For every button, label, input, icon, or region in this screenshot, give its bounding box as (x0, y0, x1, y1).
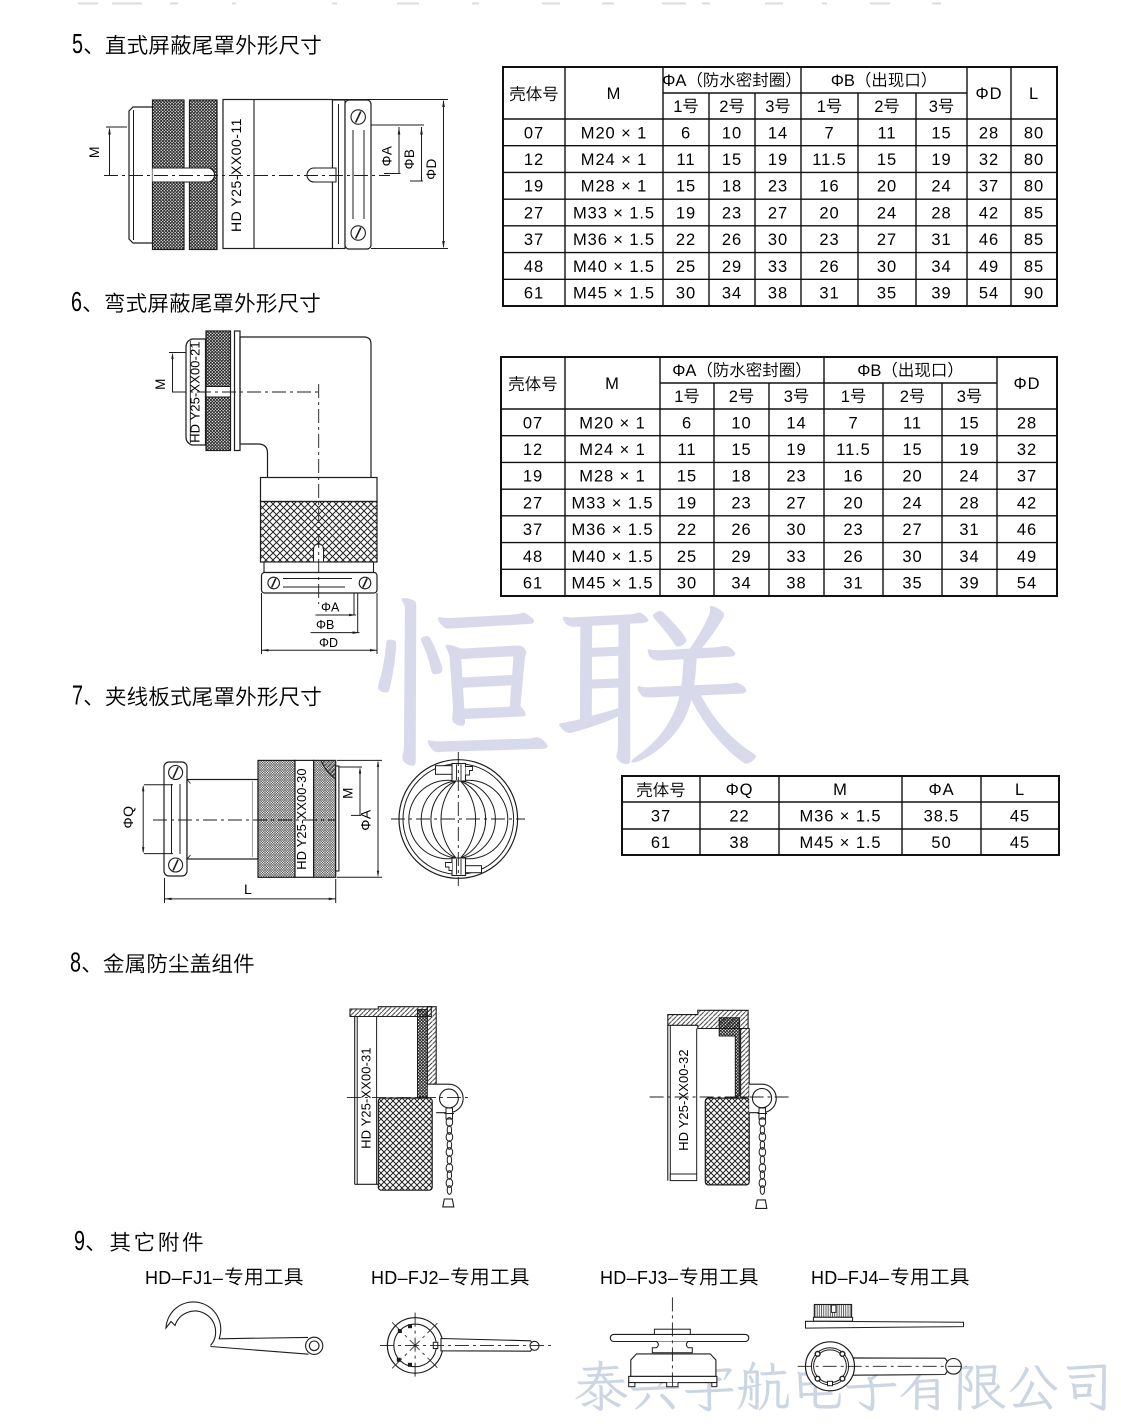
svg-text:30: 30 (786, 521, 806, 539)
svg-text:23: 23 (843, 521, 863, 539)
svg-text:90: 90 (1024, 285, 1044, 303)
svg-text:ΦA: ΦA (380, 146, 395, 167)
svg-text:3: 3 (765, 98, 774, 116)
svg-text:26: 26 (731, 521, 751, 539)
svg-text:16: 16 (843, 468, 863, 486)
svg-text:07: 07 (524, 124, 544, 142)
svg-text:10: 10 (731, 414, 751, 432)
svg-text:80: 80 (1024, 178, 1044, 196)
svg-text:M: M (153, 378, 168, 390)
svg-text:L: L (244, 881, 252, 897)
svg-text:30: 30 (768, 231, 788, 249)
svg-text:30: 30 (677, 575, 697, 593)
svg-text:ΦB: ΦB (402, 149, 417, 170)
svg-text:37: 37 (1017, 468, 1037, 486)
svg-text:16: 16 (819, 178, 839, 196)
svg-text:HD Y25-XX00-11: HD Y25-XX00-11 (228, 118, 244, 232)
svg-text:15: 15 (722, 151, 742, 169)
svg-text:30: 30 (877, 258, 897, 276)
svg-text:38: 38 (729, 834, 749, 852)
svg-text:M: M (341, 787, 356, 799)
svg-text:29: 29 (731, 548, 751, 566)
svg-text:M40 × 1.5: M40 × 1.5 (572, 548, 654, 566)
svg-text:27: 27 (877, 231, 897, 249)
svg-text:3: 3 (957, 388, 966, 406)
svg-text:38: 38 (768, 285, 788, 303)
svg-text:85: 85 (1024, 258, 1044, 276)
svg-text:ΦA: ΦA (321, 601, 340, 615)
svg-text:15: 15 (877, 151, 897, 169)
svg-text:20: 20 (843, 494, 863, 512)
svg-text:31: 31 (931, 231, 951, 249)
svg-text:1: 1 (673, 98, 682, 116)
svg-text:35: 35 (902, 575, 922, 593)
svg-text:54: 54 (1017, 575, 1037, 593)
svg-text:3: 3 (929, 98, 938, 116)
svg-text:11.5: 11.5 (836, 441, 871, 459)
svg-text:80: 80 (1024, 151, 1044, 169)
svg-text:9: 9 (74, 1226, 85, 1257)
svg-text:ΦQ: ΦQ (726, 781, 754, 799)
svg-text:49: 49 (1017, 548, 1037, 566)
svg-text:2: 2 (729, 388, 738, 406)
svg-text:61: 61 (651, 834, 671, 852)
svg-text:M36 × 1.5: M36 × 1.5 (573, 231, 655, 249)
svg-text:11: 11 (677, 151, 696, 169)
svg-text:31: 31 (959, 521, 979, 539)
svg-text:22: 22 (729, 807, 749, 825)
svg-text:26: 26 (819, 258, 839, 276)
svg-text:34: 34 (722, 285, 742, 303)
svg-text:HD Y25-XX00-32: HD Y25-XX00-32 (676, 1049, 691, 1150)
svg-text:31: 31 (843, 575, 863, 593)
svg-text:07: 07 (523, 414, 543, 432)
svg-text:14: 14 (786, 414, 806, 432)
svg-text:12: 12 (524, 151, 544, 169)
svg-text:23: 23 (722, 204, 742, 222)
svg-text:25: 25 (676, 258, 696, 276)
svg-text:HD–FJ2–: HD–FJ2– (371, 1268, 449, 1288)
svg-text:7: 7 (824, 124, 834, 142)
svg-text:27: 27 (768, 204, 788, 222)
svg-text:23: 23 (731, 494, 751, 512)
svg-text:18: 18 (731, 468, 751, 486)
svg-text:42: 42 (1017, 494, 1037, 512)
svg-text:11: 11 (903, 414, 922, 432)
svg-text:L: L (1029, 85, 1039, 103)
svg-text:M36 × 1.5: M36 × 1.5 (800, 807, 882, 825)
svg-text:ΦA: ΦA (929, 781, 955, 799)
svg-text:ΦA: ΦA (672, 362, 696, 380)
svg-text:1: 1 (841, 388, 850, 406)
svg-text:M36 × 1.5: M36 × 1.5 (572, 521, 654, 539)
svg-text:HD–FJ3–: HD–FJ3– (600, 1268, 678, 1288)
svg-text:38: 38 (786, 575, 806, 593)
svg-text:28: 28 (959, 494, 979, 512)
svg-text:48: 48 (523, 548, 543, 566)
svg-text:15: 15 (676, 178, 696, 196)
svg-text:8: 8 (70, 947, 81, 978)
svg-text:ΦQ: ΦQ (120, 805, 136, 828)
svg-text:27: 27 (524, 204, 544, 222)
svg-text:5: 5 (72, 29, 83, 60)
svg-text:20: 20 (877, 178, 897, 196)
svg-text:19: 19 (677, 494, 697, 512)
svg-text:50: 50 (931, 834, 951, 852)
svg-text:1: 1 (817, 98, 826, 116)
svg-text:2: 2 (900, 388, 909, 406)
svg-text:M45 × 1.5: M45 × 1.5 (573, 285, 655, 303)
svg-text:6: 6 (681, 124, 691, 142)
svg-text:M45 × 1.5: M45 × 1.5 (572, 575, 654, 593)
svg-text:11: 11 (678, 441, 697, 459)
svg-text:1: 1 (674, 388, 683, 406)
svg-text:11: 11 (878, 124, 897, 142)
svg-text:37: 37 (651, 807, 671, 825)
svg-text:27: 27 (523, 494, 543, 512)
svg-text:M: M (833, 781, 848, 799)
svg-text:24: 24 (877, 204, 897, 222)
svg-text:46: 46 (979, 231, 999, 249)
svg-text:M24 × 1: M24 × 1 (579, 441, 645, 459)
svg-text:HD–FJ4–: HD–FJ4– (811, 1268, 889, 1288)
svg-text:27: 27 (786, 494, 806, 512)
svg-text:15: 15 (677, 468, 697, 486)
svg-text:M: M (605, 375, 620, 393)
svg-text:18: 18 (722, 178, 742, 196)
svg-text:19: 19 (524, 178, 544, 196)
svg-text:28: 28 (979, 124, 999, 142)
svg-text:ΦA: ΦA (662, 72, 686, 90)
svg-text:22: 22 (677, 521, 697, 539)
svg-text:24: 24 (931, 178, 951, 196)
svg-text:M20 × 1: M20 × 1 (579, 414, 645, 432)
svg-text:34: 34 (731, 575, 751, 593)
svg-text:61: 61 (523, 575, 543, 593)
svg-text:37: 37 (523, 521, 543, 539)
svg-text:33: 33 (786, 548, 806, 566)
svg-text:33: 33 (768, 258, 788, 276)
svg-text:M45 × 1.5: M45 × 1.5 (800, 834, 882, 852)
svg-text:23: 23 (786, 468, 806, 486)
svg-text:15: 15 (731, 441, 751, 459)
svg-text:23: 23 (819, 231, 839, 249)
svg-text:19: 19 (931, 151, 951, 169)
svg-text:30: 30 (902, 548, 922, 566)
svg-text:ΦB: ΦB (831, 72, 855, 90)
svg-text:26: 26 (843, 548, 863, 566)
svg-text:22: 22 (676, 231, 696, 249)
svg-text:14: 14 (768, 124, 788, 142)
svg-text:19: 19 (959, 441, 979, 459)
svg-text:38.5: 38.5 (924, 807, 960, 825)
svg-text:39: 39 (959, 575, 979, 593)
svg-text:30: 30 (676, 285, 696, 303)
svg-text:11.5: 11.5 (812, 151, 847, 169)
svg-text:M28 × 1: M28 × 1 (581, 178, 647, 196)
svg-text:ΦD: ΦD (319, 636, 338, 650)
svg-text:26: 26 (722, 231, 742, 249)
svg-text:32: 32 (1017, 441, 1037, 459)
svg-text:M20 × 1: M20 × 1 (581, 124, 647, 142)
svg-text:80: 80 (1024, 124, 1044, 142)
svg-text:32: 32 (979, 151, 999, 169)
svg-text:54: 54 (979, 285, 999, 303)
svg-text:34: 34 (931, 258, 951, 276)
svg-text:61: 61 (524, 285, 544, 303)
svg-text:46: 46 (1017, 521, 1037, 539)
svg-text:27: 27 (902, 521, 922, 539)
svg-text:M: M (607, 85, 622, 103)
svg-text:37: 37 (979, 178, 999, 196)
svg-text:19: 19 (786, 441, 806, 459)
svg-text:M33 × 1.5: M33 × 1.5 (573, 204, 655, 222)
svg-text:31: 31 (819, 285, 839, 303)
svg-text:M28 × 1: M28 × 1 (579, 468, 645, 486)
svg-text:15: 15 (931, 124, 951, 142)
svg-text:12: 12 (523, 441, 543, 459)
svg-text:M24 × 1: M24 × 1 (581, 151, 647, 169)
svg-text:6: 6 (682, 414, 692, 432)
svg-text:15: 15 (902, 441, 922, 459)
svg-text:ΦD: ΦD (976, 85, 1003, 103)
svg-text:42: 42 (979, 204, 999, 222)
svg-text:2: 2 (874, 98, 883, 116)
svg-text:20: 20 (902, 468, 922, 486)
svg-text:2: 2 (719, 98, 728, 116)
svg-text:6: 6 (71, 287, 82, 318)
svg-text:24: 24 (959, 468, 979, 486)
svg-text:ΦD: ΦD (424, 158, 439, 180)
svg-text:7: 7 (848, 414, 858, 432)
svg-text:29: 29 (722, 258, 742, 276)
svg-text:19: 19 (523, 468, 543, 486)
svg-text:35: 35 (877, 285, 897, 303)
svg-text:34: 34 (959, 548, 979, 566)
svg-text:24: 24 (902, 494, 922, 512)
svg-text:M: M (86, 146, 102, 158)
svg-text:10: 10 (722, 124, 742, 142)
svg-text:ΦB: ΦB (857, 362, 881, 380)
svg-text:37: 37 (524, 231, 544, 249)
svg-text:39: 39 (931, 285, 951, 303)
svg-text:HD–FJ1–: HD–FJ1– (145, 1268, 223, 1288)
svg-text:ΦD: ΦD (1014, 375, 1041, 393)
svg-text:48: 48 (524, 258, 544, 276)
svg-text:20: 20 (819, 204, 839, 222)
svg-text:3: 3 (784, 388, 793, 406)
svg-text:23: 23 (768, 178, 788, 196)
svg-text:45: 45 (1010, 807, 1030, 825)
svg-text:25: 25 (677, 548, 697, 566)
svg-text:HD Y25-XX00-30: HD Y25-XX00-30 (294, 768, 309, 869)
svg-text:19: 19 (676, 204, 696, 222)
svg-text:ΦB: ΦB (316, 618, 334, 632)
svg-text:7: 7 (72, 680, 83, 711)
svg-text:M40 × 1.5: M40 × 1.5 (573, 258, 655, 276)
svg-text:28: 28 (931, 204, 951, 222)
svg-text:15: 15 (959, 414, 979, 432)
svg-text:ΦA: ΦA (358, 809, 374, 831)
svg-text:L: L (1015, 781, 1025, 799)
svg-text:85: 85 (1024, 204, 1044, 222)
svg-text:28: 28 (1017, 414, 1037, 432)
svg-text:19: 19 (768, 151, 788, 169)
svg-text:M33 × 1.5: M33 × 1.5 (572, 494, 654, 512)
svg-text:45: 45 (1010, 834, 1030, 852)
svg-text:85: 85 (1024, 231, 1044, 249)
svg-text:49: 49 (979, 258, 999, 276)
